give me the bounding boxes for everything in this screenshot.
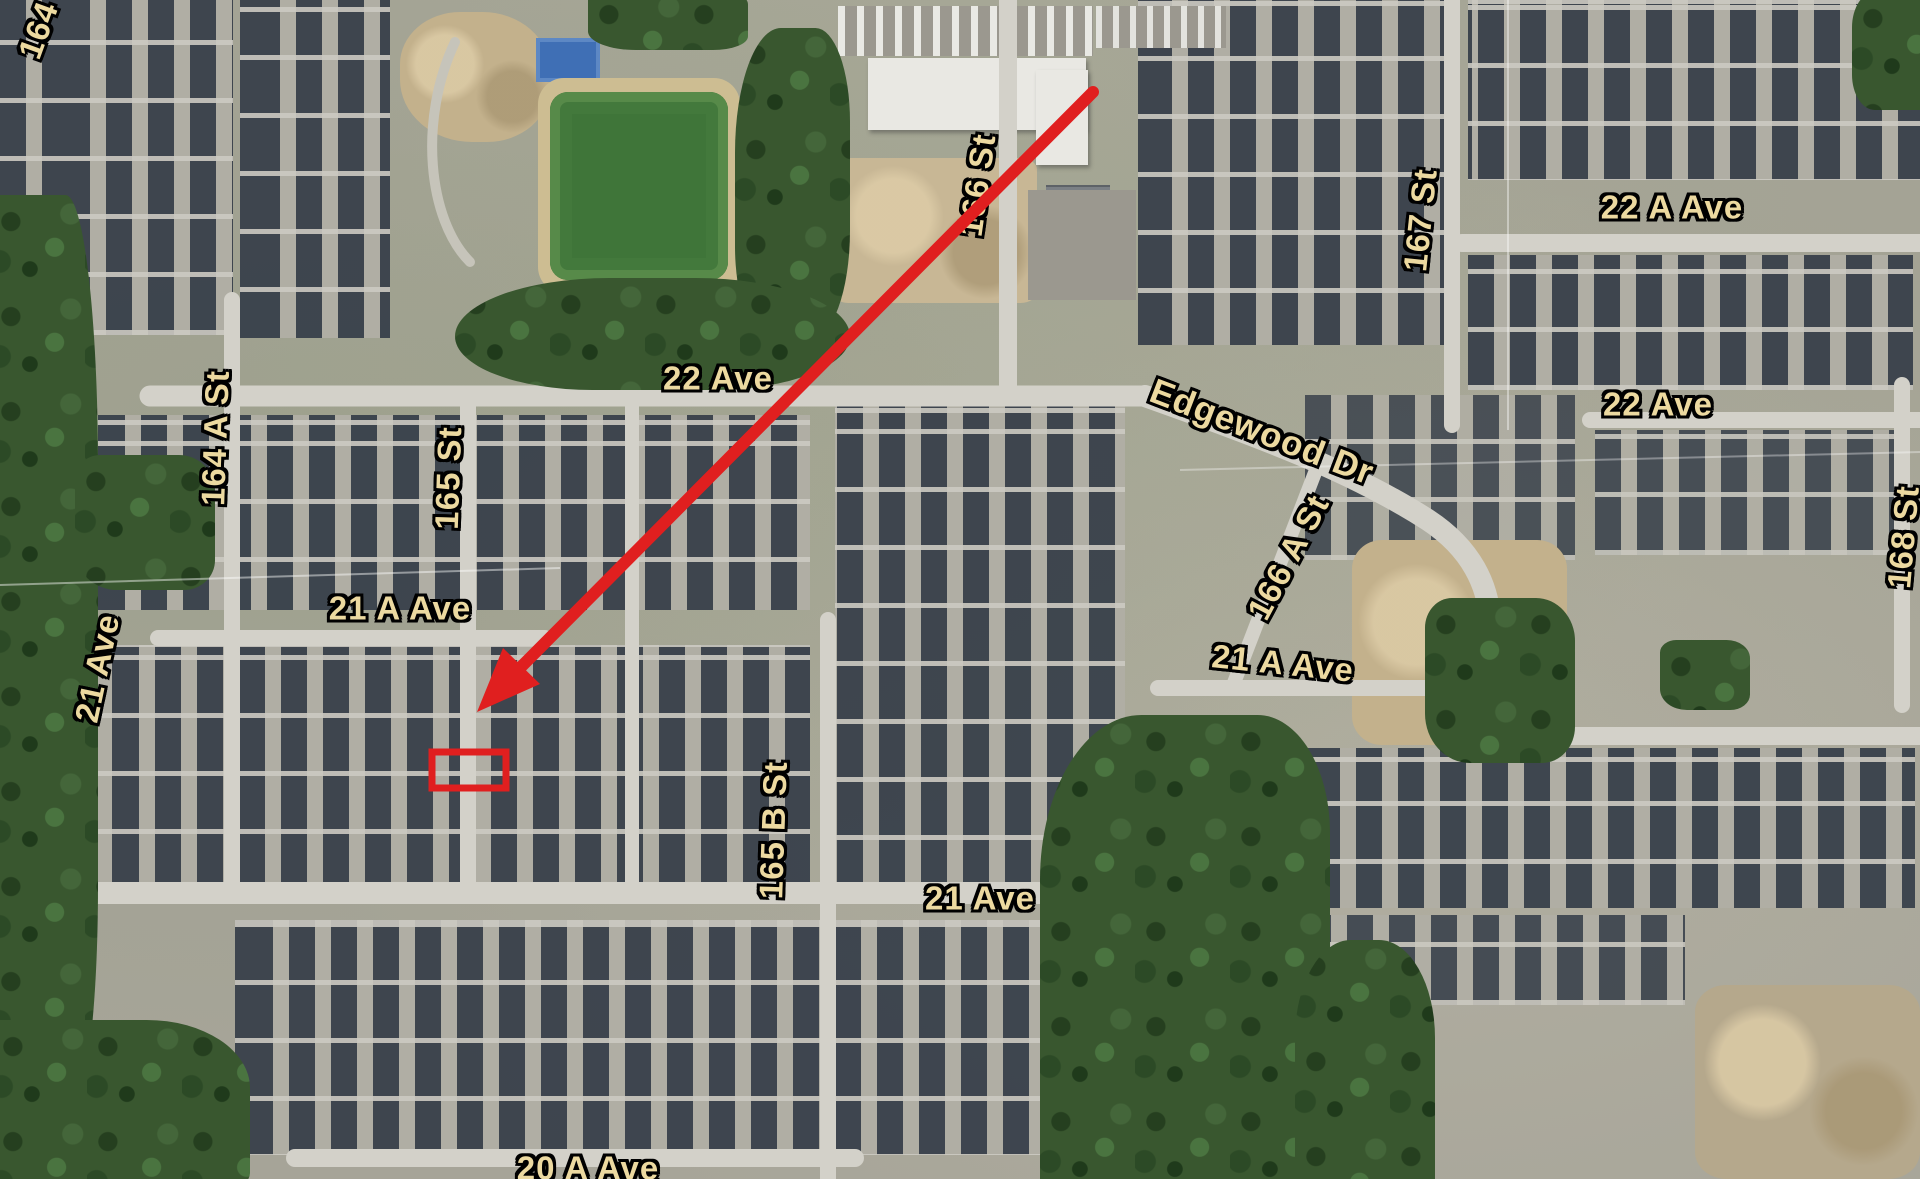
satellite-map-canvas[interactable]: 164 164 A St 165 St 22 Ave 166 St Edgewo…: [0, 0, 1920, 1179]
annotation-layer: [0, 0, 1920, 1179]
annotation-arrow-line: [519, 92, 1093, 669]
highlighted-property-box: [432, 752, 506, 788]
